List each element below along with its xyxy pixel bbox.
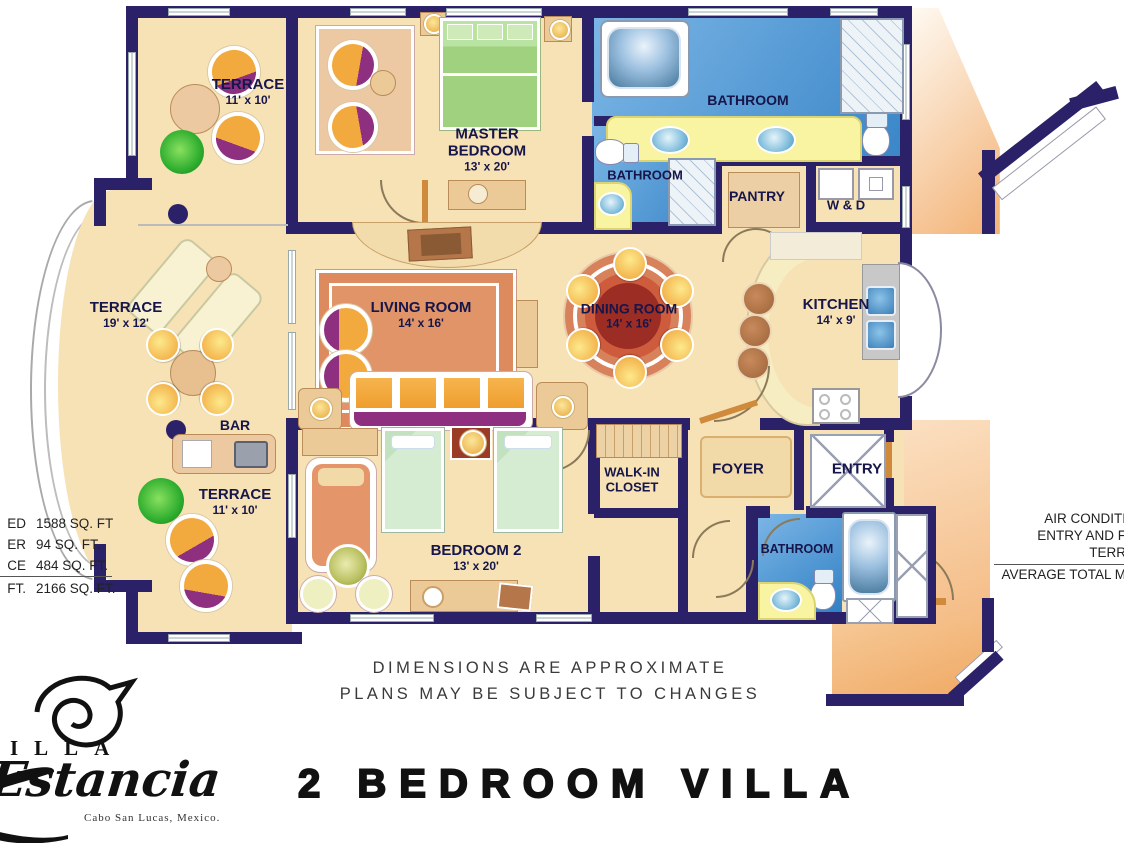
- room-dims: 19' x 12': [103, 317, 149, 330]
- pillow: [391, 435, 435, 449]
- stove: [812, 388, 860, 424]
- room-name: BATHROOM: [707, 93, 788, 109]
- desk-chair: [497, 582, 534, 611]
- label-kitchen: KITCHEN 14' x 9': [803, 297, 870, 327]
- master-bed: [440, 18, 540, 130]
- right-legend-line: ENTRY AND F: [994, 528, 1124, 545]
- label-bar: BAR: [220, 418, 250, 434]
- bathtub: [600, 20, 690, 98]
- plan-title: 2 BEDROOM VILLA: [235, 762, 925, 807]
- lamp: [310, 398, 332, 420]
- dryer: [858, 168, 894, 200]
- dresser-mirror: [468, 184, 488, 204]
- wall-segment: [900, 234, 912, 266]
- bay-window: [898, 262, 942, 398]
- room-name: TERRACE: [199, 487, 272, 504]
- chaise-pillow: [318, 468, 364, 486]
- right-legend-line: AIR CONDITI: [994, 511, 1124, 528]
- column-post: [168, 204, 188, 224]
- brand-name-script: Estancia: [0, 752, 223, 808]
- area-summary-row: ER 94 SQ. FT.: [0, 534, 120, 555]
- burner: [819, 409, 830, 420]
- area-value: 2166 SQ. FT.: [36, 581, 116, 596]
- room-name: BATHROOM: [607, 169, 683, 184]
- label-dining-room: DINING ROOM 14' x 16': [581, 301, 677, 330]
- tv-screen: [421, 233, 462, 256]
- area-summary: ED 1588 SQ. FT ER 94 SQ. FT. CE 484 SQ. …: [0, 513, 120, 599]
- brand-logo: ILLA Estancia Cabo San Lucas, Mexico.: [0, 660, 232, 843]
- room-name: BEDROOM 2: [431, 543, 522, 560]
- bathtub-surround: [842, 512, 896, 602]
- burner: [840, 394, 851, 405]
- sofa: [350, 372, 532, 430]
- window: [168, 8, 230, 16]
- window: [288, 474, 296, 538]
- disclaimer: DIMENSIONS ARE APPROXIMATE PLANS MAY BE …: [240, 656, 860, 707]
- sofa-base: [354, 412, 526, 426]
- bar-tv: [234, 441, 268, 468]
- bar-sink: [182, 440, 212, 468]
- label-wd: W & D: [827, 199, 865, 214]
- wall-segment: [286, 6, 298, 234]
- toilet: [862, 124, 890, 156]
- area-value: 1588 SQ. FT: [36, 516, 113, 531]
- bed: [382, 428, 444, 532]
- pillow: [507, 24, 533, 40]
- area-value: 94 SQ. FT.: [36, 537, 101, 552]
- wall-segment: [594, 508, 688, 518]
- window: [288, 250, 296, 324]
- desk-clock: [422, 586, 444, 608]
- wall-segment: [756, 506, 770, 518]
- sofa-cushion: [398, 376, 438, 410]
- wall-segment: [794, 430, 804, 510]
- closet-rod: [596, 424, 682, 458]
- vanity-counter: [606, 116, 862, 162]
- utility-shaft: [896, 514, 928, 618]
- toilet: [595, 139, 627, 165]
- pillow: [504, 435, 552, 449]
- window: [446, 8, 542, 16]
- room-name: FOYER: [712, 462, 764, 479]
- dryer-door: [869, 177, 883, 191]
- window: [128, 52, 136, 156]
- room-name: TERRACE: [90, 300, 163, 317]
- area-label: ED: [0, 516, 26, 531]
- label-living-room: LIVING ROOM 14' x 16': [371, 300, 472, 330]
- label-master-bathroom: BATHROOM: [707, 93, 788, 109]
- dresser: [302, 428, 378, 456]
- sofa-cushion: [354, 376, 394, 410]
- bathtub-basin: [848, 519, 890, 595]
- room-name: LIVING ROOM: [371, 300, 472, 317]
- room-name: MASTER BEDROOM: [432, 126, 542, 160]
- pillow: [477, 24, 503, 40]
- room-name: BATHROOM: [761, 542, 834, 556]
- room-name: KITCHEN: [803, 297, 870, 314]
- sink: [756, 126, 796, 154]
- right-legend-line: AVERAGE TOTAL M: [994, 567, 1124, 584]
- kitchen-counter: [770, 232, 862, 260]
- shower: [840, 18, 904, 114]
- window: [350, 8, 406, 16]
- area-summary-row: ED 1588 SQ. FT: [0, 513, 120, 534]
- console-table: [516, 300, 538, 368]
- wall-segment: [582, 6, 594, 102]
- room-name: PANTRY: [729, 189, 785, 205]
- room-dims: 11' x 10': [225, 94, 270, 107]
- wall-segment: [982, 598, 994, 652]
- room-name: TERRACE: [212, 77, 285, 94]
- room-name: WALK-IN CLOSET: [593, 465, 671, 494]
- label-walk-in-closet: WALK-IN CLOSET: [593, 465, 671, 494]
- dining-chair: [613, 247, 647, 281]
- dining-chair: [613, 355, 647, 389]
- burner: [819, 394, 830, 405]
- area-summary-row: CE 484 SQ. FT.: [0, 555, 120, 575]
- label-entry: ENTRY: [832, 462, 882, 479]
- lamp: [552, 396, 574, 418]
- kitchen-sink: [866, 320, 896, 350]
- door-leaf: [422, 180, 428, 224]
- sink: [650, 126, 690, 154]
- label-foyer: FOYER: [712, 462, 764, 479]
- side-table: [206, 256, 232, 282]
- label-terrace-main: TERRACE 19' x 12': [90, 300, 163, 330]
- label-pantry: PANTRY: [729, 189, 785, 205]
- floor-plan-canvas: TERRACE 11' x 10' MASTER BEDROOM 13' x 2…: [0, 0, 1124, 843]
- washer: [818, 168, 854, 200]
- window: [168, 634, 230, 642]
- area-value: 484 SQ. FT.: [36, 558, 108, 573]
- area-label: ER: [0, 537, 26, 552]
- room-dims: 14' x 16': [398, 317, 444, 330]
- sofa-cushion: [442, 376, 482, 410]
- window: [536, 614, 592, 622]
- room-name: DINING ROOM: [581, 301, 677, 317]
- lamp: [550, 20, 570, 40]
- wall-segment: [678, 518, 688, 612]
- label-bedroom-2: BEDROOM 2 13' x 20': [431, 543, 522, 573]
- room-name: BAR: [220, 418, 250, 434]
- terrace-divider-line: [138, 224, 288, 226]
- brand-location: Cabo San Lucas, Mexico.: [84, 812, 220, 824]
- room-name: ENTRY: [832, 462, 882, 479]
- sink: [598, 192, 626, 216]
- label-terrace-top: TERRACE 11' x 10': [212, 77, 285, 107]
- wall-segment: [94, 178, 106, 226]
- area-summary-row: FT. 2166 SQ. FT.: [0, 578, 120, 599]
- window: [688, 8, 788, 16]
- room-dims: 13' x 20': [453, 560, 499, 573]
- disclaimer-line2: PLANS MAY BE SUBJECT TO CHANGES: [240, 682, 860, 708]
- bed: [494, 428, 562, 532]
- area-label: FT.: [0, 581, 26, 596]
- tv: [407, 226, 473, 261]
- bar-stool: [742, 282, 776, 316]
- window: [830, 8, 878, 16]
- pouf: [300, 576, 336, 612]
- sofa-cushion: [486, 376, 526, 410]
- bathtub-basin: [607, 27, 681, 89]
- kitchen-sink: [866, 286, 896, 316]
- window: [288, 332, 296, 410]
- room-dims: 14' x 9': [816, 314, 855, 327]
- pouf: [356, 576, 392, 612]
- right-legend-line: TERR: [994, 545, 1124, 562]
- disclaimer-line1: DIMENSIONS ARE APPROXIMATE: [240, 656, 860, 682]
- window: [902, 186, 910, 228]
- area-label: CE: [0, 558, 26, 573]
- label-terrace-bottom: TERRACE 11' x 10': [199, 487, 272, 517]
- room-dims: 14' x 16': [606, 317, 652, 330]
- burner: [840, 409, 851, 420]
- total-divider: [994, 564, 1124, 565]
- window: [350, 614, 434, 622]
- pillow: [447, 24, 473, 40]
- bar-stool: [738, 314, 772, 348]
- utility-box: [846, 598, 894, 624]
- total-divider: [0, 576, 112, 577]
- right-legend: AIR CONDITI ENTRY AND F TERR AVERAGE TOT…: [994, 511, 1124, 584]
- sink: [770, 588, 802, 612]
- wall-segment: [582, 136, 594, 234]
- adjacent-structure-top-right: [896, 8, 1014, 234]
- side-table: [370, 70, 396, 96]
- room-dims: 13' x 20': [464, 160, 510, 173]
- label-bathroom-2: BATHROOM: [761, 542, 834, 556]
- lamp: [460, 430, 486, 456]
- room-name: W & D: [827, 199, 865, 214]
- room-dims: 11' x 10': [212, 504, 257, 517]
- plant: [160, 130, 204, 174]
- label-master-bedroom: MASTER BEDROOM 13' x 20': [432, 126, 542, 173]
- armchair: [320, 304, 372, 356]
- door-leaf: [886, 442, 892, 478]
- bed-fold-line: [443, 73, 537, 76]
- label-guest-bathroom: BATHROOM: [607, 169, 683, 184]
